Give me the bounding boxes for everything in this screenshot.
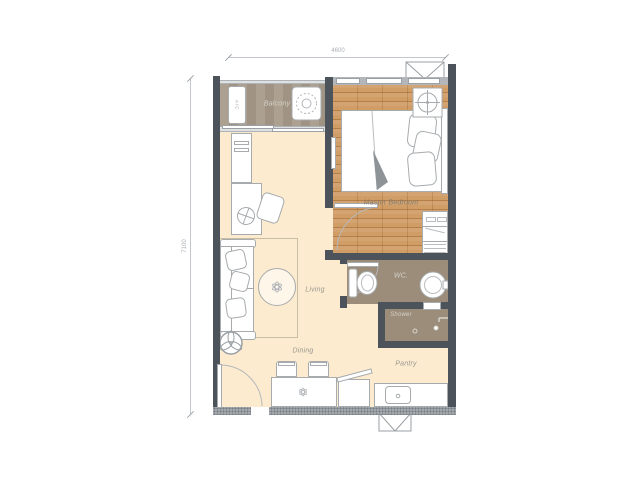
- dining-label: Dining: [292, 348, 313, 355]
- sliding-door-panel: [222, 125, 274, 129]
- dimension-line-left: [190, 78, 191, 415]
- entrance-threshold: [251, 407, 269, 415]
- tv: [331, 137, 336, 169]
- master-bedroom-label: Master Bedroom: [364, 200, 419, 207]
- ac-unit: A/C: [228, 86, 246, 124]
- kitchen-sink: [385, 386, 411, 404]
- wall-wc-bottom: [378, 302, 456, 309]
- bedroom-window: [366, 78, 402, 84]
- dimension-left-value: 7100: [182, 239, 188, 252]
- entrance-door-leaf: [217, 364, 222, 408]
- ac-unit-label: A/C: [235, 100, 240, 111]
- wall-bottom: [213, 407, 456, 415]
- shelf-drawer-line: [234, 141, 249, 145]
- wc-label: WC.: [394, 273, 408, 280]
- dimension-line-top: [228, 57, 446, 58]
- sofa-armrest: [220, 331, 256, 340]
- dining-chair-back: [278, 362, 295, 366]
- balcony-label: Balcony: [264, 101, 290, 108]
- coffee-table: [258, 268, 296, 306]
- sliding-door-panel: [272, 128, 324, 132]
- balcony-railing: [220, 80, 325, 84]
- vent-symbol-bottom: [379, 413, 411, 431]
- bedroom-window: [408, 78, 440, 84]
- bed-pillow: [407, 151, 438, 187]
- wall-wc-left-upper: [340, 253, 347, 264]
- refrigerator: [338, 379, 370, 407]
- wall-wc-left-lower: [340, 296, 347, 308]
- shower-door: [423, 302, 441, 310]
- sofa-pillow: [224, 248, 248, 272]
- wall-right: [448, 64, 456, 415]
- shelf-drawer-line: [234, 148, 249, 152]
- living-label: Living: [305, 287, 325, 294]
- wardrobe: [422, 211, 448, 257]
- wc-door-leaf: [347, 262, 379, 267]
- pantry-label: Pantry: [395, 361, 416, 368]
- dining-table: [271, 377, 337, 407]
- dimension-top-value: 4600: [331, 48, 344, 54]
- dimension-tick: [442, 54, 449, 61]
- dimension-tick: [187, 411, 194, 418]
- shower-label: Shower: [390, 312, 412, 318]
- wall-shower-bottom: [378, 341, 456, 348]
- floor-plan: A/C: [0, 0, 640, 480]
- sofa-pillow: [225, 297, 248, 320]
- bedroom-window: [336, 78, 360, 84]
- dining-chair-back: [310, 362, 327, 366]
- bed-headboard: [441, 108, 448, 194]
